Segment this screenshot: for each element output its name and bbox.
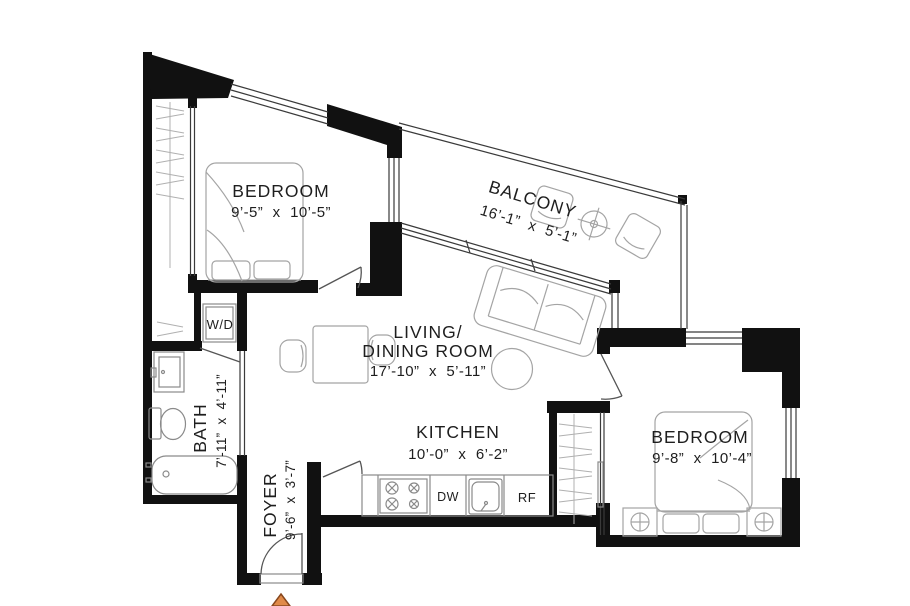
bedroom-2-label: BEDROOM [651, 427, 748, 447]
kitchen-dimensions: 10’-0” x 6’-2” [408, 446, 508, 463]
bedroom-1-dimensions: 9’-5” x 10’-5” [231, 204, 331, 221]
floor-plan-page: BEDROOM 9’-5” x 10’-5” BALCONY 16’-1” x … [0, 0, 910, 606]
living-room-label-line2: DINING ROOM [362, 341, 494, 361]
bath-label: BATH [190, 403, 210, 452]
balcony-chair-2 [613, 211, 662, 260]
living-room-label-line1: LIVING/ [393, 322, 462, 342]
windows [191, 84, 797, 535]
bath-dimensions: 7’-11” x 4’-11” [214, 374, 229, 468]
kitchen-label: KITCHEN [416, 422, 500, 442]
foyer-dimensions: 9’-6” x 3’-7” [283, 460, 298, 540]
washer-dryer-label: W/D [207, 317, 234, 332]
refrigerator-label: RF [518, 490, 536, 505]
north-arrow-icon [272, 594, 290, 606]
foyer-label: FOYER [260, 472, 280, 537]
dishwasher-label: DW [437, 490, 459, 504]
bedroom-1-label: BEDROOM [232, 181, 329, 201]
living-room-dimensions: 17’-10” x 5’-11” [370, 363, 486, 380]
floor-plan: BEDROOM 9’-5” x 10’-5” BALCONY 16’-1” x … [0, 0, 910, 606]
labels: BEDROOM 9’-5” x 10’-5” BALCONY 16’-1” x … [190, 176, 752, 540]
bedroom-2-dimensions: 9’-8” x 10’-4” [652, 450, 752, 467]
balcony-table [573, 203, 615, 245]
